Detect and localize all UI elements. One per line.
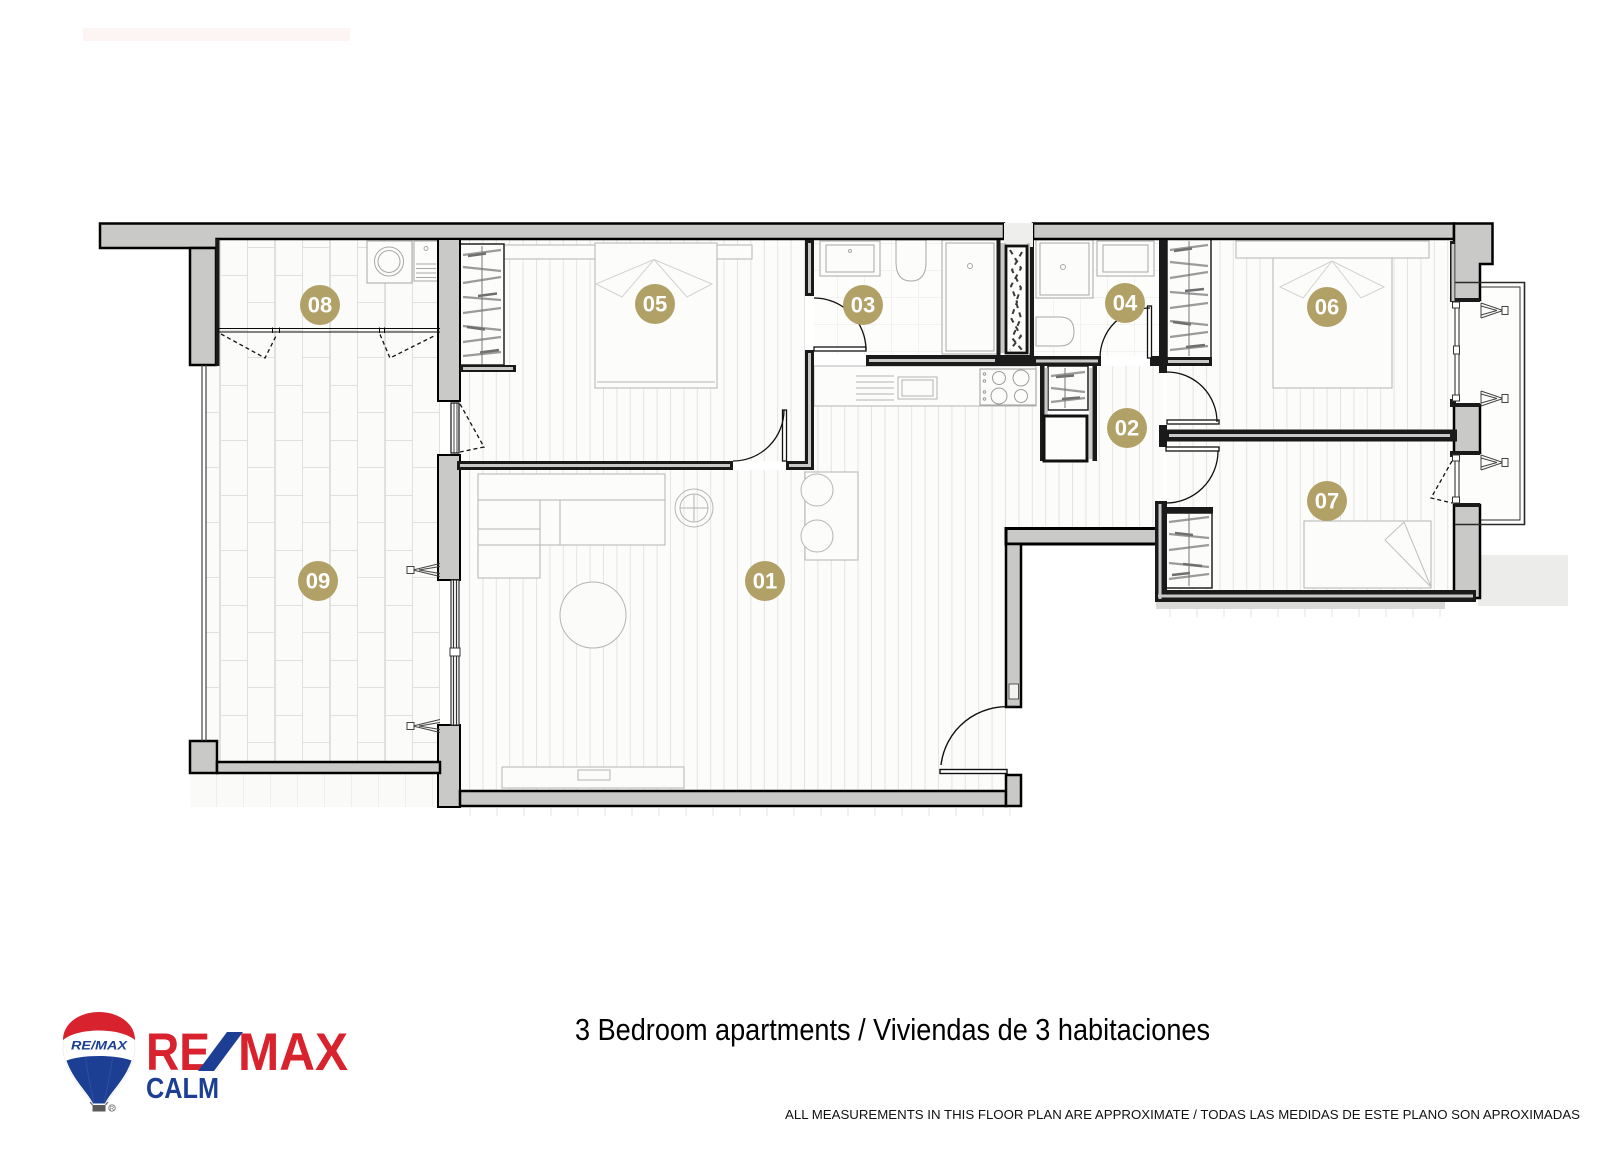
- svg-text:03: 03: [851, 293, 875, 318]
- svg-text:R: R: [110, 1107, 115, 1113]
- svg-text:RE/MAX: RE/MAX: [71, 1041, 129, 1053]
- svg-text:04: 04: [1113, 291, 1138, 316]
- svg-text:3 Bedroom apartments / Viviend: 3 Bedroom apartments / Viviendas de 3 ha…: [575, 1012, 1210, 1047]
- svg-text:05: 05: [643, 292, 667, 317]
- svg-text:07: 07: [1315, 489, 1339, 514]
- svg-text:02: 02: [1115, 416, 1139, 441]
- svg-text:MAX: MAX: [238, 1023, 348, 1082]
- svg-text:09: 09: [306, 569, 330, 594]
- svg-text:CALM: CALM: [146, 1073, 219, 1105]
- svg-text:01: 01: [753, 569, 777, 594]
- svg-text:ALL MEASUREMENTS IN THIS FLOOR: ALL MEASUREMENTS IN THIS FLOOR PLAN ARE …: [785, 1107, 1580, 1122]
- svg-text:08: 08: [308, 293, 332, 318]
- svg-text:06: 06: [1315, 295, 1339, 320]
